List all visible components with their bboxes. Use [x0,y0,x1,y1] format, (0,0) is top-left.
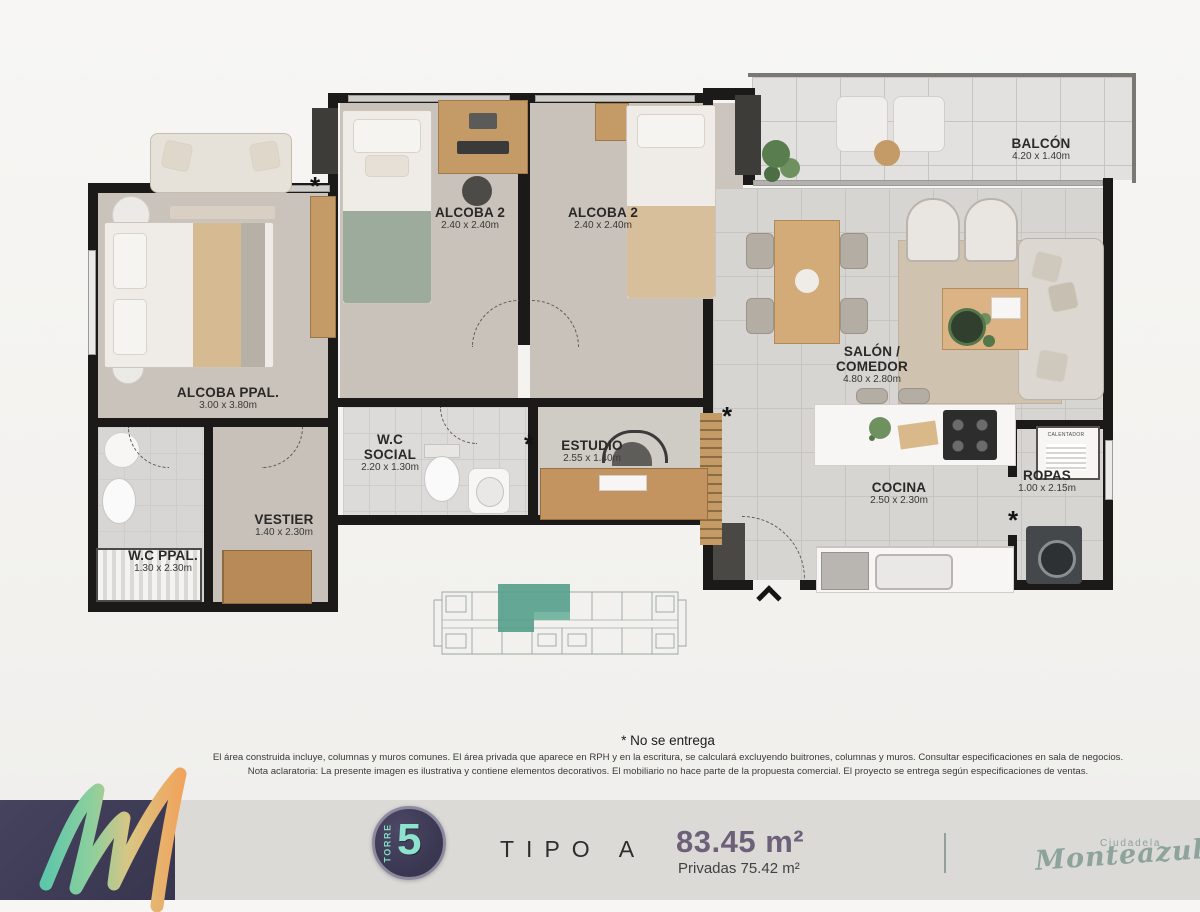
room-label-alcoba-ppal: ALCOBA PPAL. 3.00 x 3.80m [177,385,279,412]
bed-fold [241,223,265,367]
sink [875,554,953,590]
desk-items [457,141,509,154]
room-dims: 3.00 x 3.80m [177,400,279,412]
room-name: SALÓN / COMEDOR [824,344,920,374]
pillow [249,140,281,172]
wall [528,398,538,525]
room-name: ALCOBA 2 [435,205,505,220]
window [535,95,695,102]
balcony-table [874,140,900,166]
coffee-table [942,288,1028,350]
torre-label: TORRE [383,823,393,862]
pillow [365,155,409,177]
wall [333,398,713,407]
island-stool [898,388,930,404]
rug-runner [170,206,275,219]
dining-chair [840,298,868,334]
toilet-bowl-social [424,456,460,502]
room-label-estudio: ESTUDIO 2.55 x 1.40m [561,438,622,465]
centerpiece [795,269,819,293]
laptop [469,113,497,129]
window [88,250,96,355]
plant-island [869,417,891,439]
island-stool [856,388,888,404]
room-label-vestier: VESTIER 1.40 x 2.30m [254,512,313,539]
pillow [113,233,147,289]
entry-arrow-icon [756,585,781,610]
cooktop [943,410,997,460]
blanket-green [343,211,431,303]
room-name: ROPAS [1018,468,1076,483]
closet [735,95,761,175]
total-area: 83.45 m² [676,824,804,860]
bed-alcoba2-a [342,110,432,304]
wardrobe-strip [310,196,336,338]
room-dims: 1.00 x 2.15m [1018,483,1076,495]
room-name: VESTIER [254,512,313,527]
pillow [160,139,193,172]
room-label-cocina: COCINA 2.50 x 2.30m [870,480,928,507]
room-name: W.C PPAL. [128,548,198,563]
desk-alcoba2-a [438,100,528,174]
room-label-wc-ppal: W.C PPAL. 1.30 x 2.30m [128,548,198,575]
washing-machine [1026,526,1082,584]
disclaimer-line-1: El área construida incluye, columnas y m… [205,751,1131,764]
basin [476,477,504,507]
type-label: TIPO A [500,836,646,863]
room-name: ALCOBA 2 [568,205,638,220]
dining-chair [746,233,774,269]
sofa-master [150,133,292,193]
wall [1103,178,1113,590]
no-entrega-marker: * [310,176,320,196]
no-entrega-marker: * [1008,510,1018,530]
room-label-balcon: BALCÓN 4.20 x 1.40m [1012,136,1071,163]
desk-chair-a [462,176,492,206]
balcony-glass-door [753,180,1103,186]
dining-chair [840,233,868,269]
bed-master [104,222,274,368]
no-entrega-note: * No se entrega [240,733,1096,748]
plant-hall [762,140,790,168]
room-dims: 1.30 x 2.30m [128,563,198,575]
room-name: ESTUDIO [561,438,622,453]
blanket-tan [627,206,715,298]
balcony-chair [893,96,945,152]
bed-runner [193,223,241,367]
plant-coffee-table [951,311,983,343]
torre-5-badge: TORRE 5 [372,806,446,880]
room-name: W.C SOCIAL [359,432,421,462]
wall [204,425,213,610]
private-area: Privadas 75.42 m² [678,860,800,877]
dining-table [774,220,840,344]
heater-lines [1046,444,1086,470]
room-dims: 2.20 x 1.30m [359,462,421,474]
room-dims: 1.40 x 2.30m [254,527,313,539]
desk-estudio [540,468,708,520]
pillow [1030,250,1064,284]
pillow [1046,280,1079,313]
pillow [113,299,147,355]
room-name: ALCOBA PPAL. [177,385,279,400]
pillow [1035,349,1070,384]
kitchen-counter [816,546,1014,593]
armchair [906,198,960,262]
room-label-alcoba2-b: ALCOBA 2 2.40 x 2.40m [568,205,638,232]
no-entrega-marker: * [722,406,732,426]
disclaimer-line-2: Nota aclaratoria: La presente imagen es … [205,765,1131,778]
room-name: COCINA [870,480,928,495]
monogram-m-logo [18,762,248,912]
vestier-wardrobe [222,550,312,604]
book [991,297,1021,319]
room-label-wc-social: W.C SOCIAL 2.20 x 1.30m [359,432,421,474]
room-dims: 2.55 x 1.40m [561,453,622,465]
torre-number: 5 [397,815,421,865]
dining-chair [746,298,774,334]
window [1105,440,1113,500]
key-plan-highlighted-unit [498,584,570,632]
room-label-ropas: ROPAS 1.00 x 2.15m [1018,468,1076,495]
room-name: BALCÓN [1012,136,1071,151]
footer-divider [944,833,946,873]
room-dims: 2.40 x 2.40m [435,220,505,232]
kitchen-island [814,404,1016,466]
toilet-ppal [102,478,136,524]
key-plan-drawing [430,576,690,672]
key-plan [430,576,690,672]
water-heater-label: CALENTADOR [1038,432,1094,438]
pillow [353,119,421,153]
cutting-board [898,420,939,449]
pillow [637,114,705,148]
room-dims: 4.20 x 1.40m [1012,151,1071,163]
cabinet [821,552,869,590]
room-label-salon: SALÓN / COMEDOR 4.80 x 2.80m [824,344,920,386]
washer-door [1038,540,1076,578]
room-label-alcoba2-a: ALCOBA 2 2.40 x 2.40m [435,205,505,232]
desk-alcoba2-b [595,103,629,141]
room-dims: 4.80 x 2.80m [824,374,920,386]
sofa-living [1018,238,1104,400]
no-entrega-marker: * [524,434,534,454]
room-dims: 2.40 x 2.40m [568,220,638,232]
bed-alcoba2-b [626,105,716,299]
desk-paper [599,475,647,491]
balcony-rail-right [1132,73,1136,183]
armchair [964,198,1018,262]
closet [312,108,338,174]
room-dims: 2.50 x 2.30m [870,495,928,507]
sink-social [468,468,510,514]
balcony-rail-top [748,73,1136,77]
